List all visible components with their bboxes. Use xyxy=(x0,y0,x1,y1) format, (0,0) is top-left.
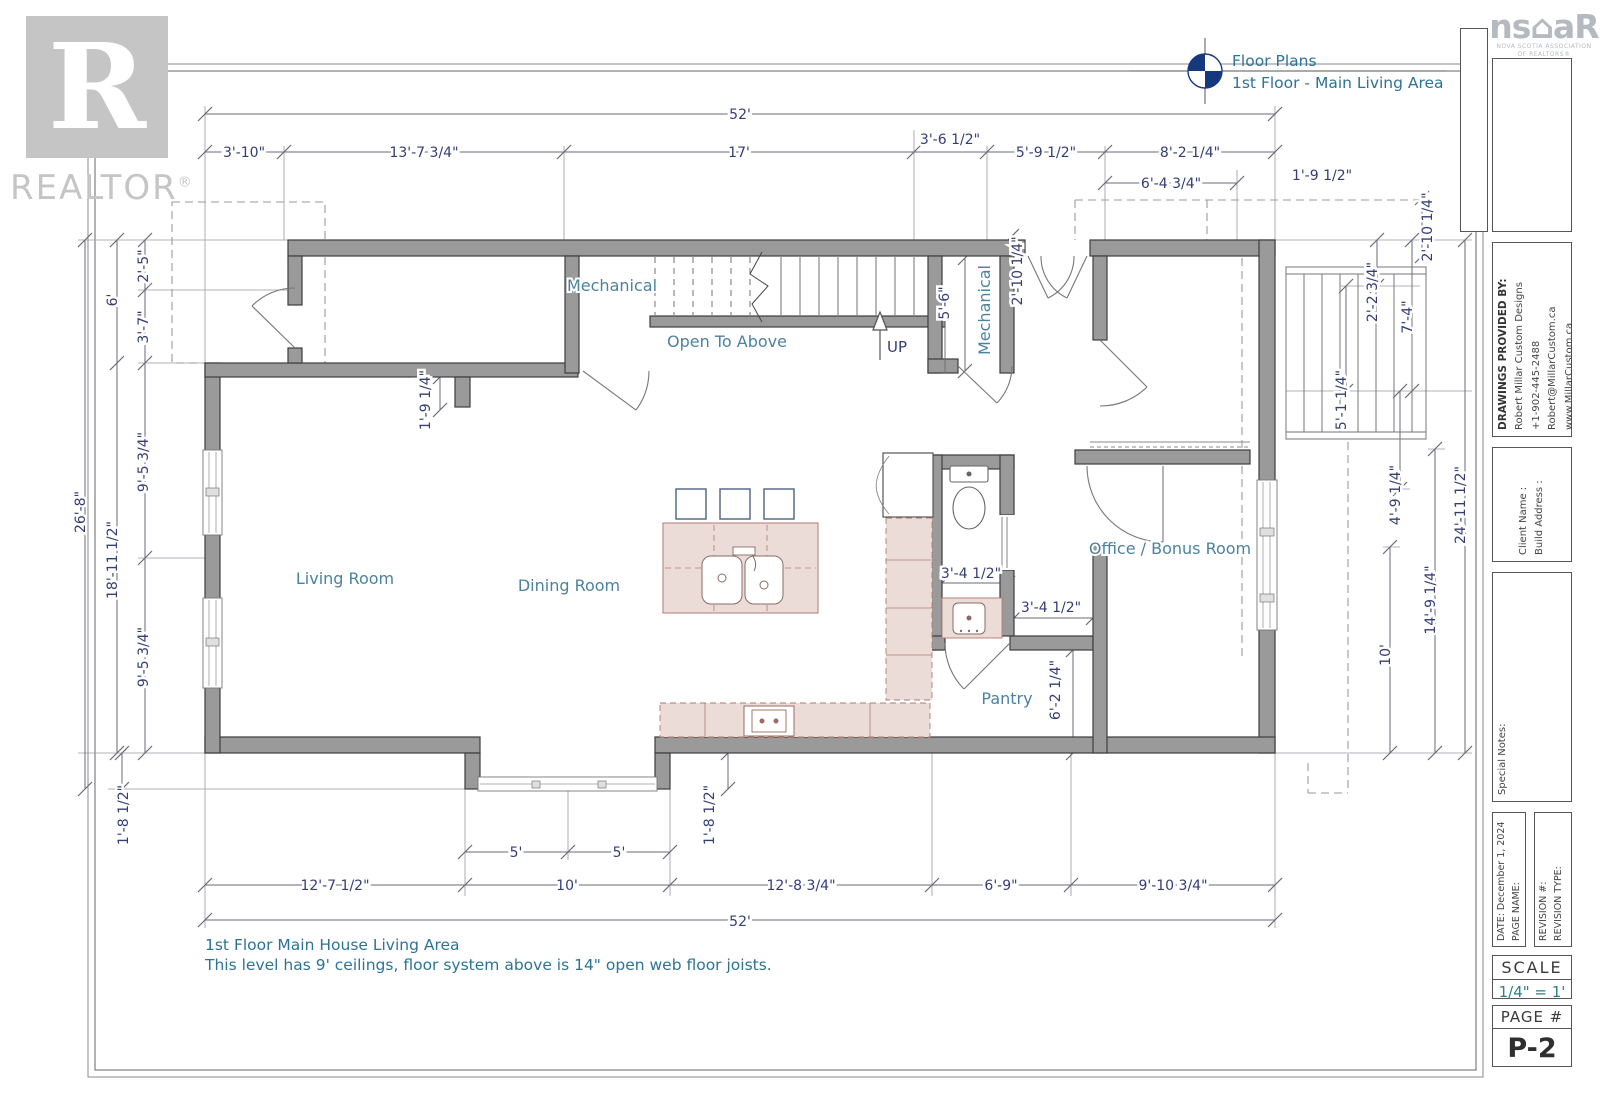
dim-top: 3'-10" xyxy=(223,145,265,161)
page-number-value: P-2 xyxy=(1493,1029,1571,1068)
kitchen-island xyxy=(663,523,818,613)
nsar-logo: ns⌂aR NOVA SCOTIA ASSOCIATIONOF REALTORS… xyxy=(1488,10,1600,59)
office-window-band xyxy=(1090,442,1250,447)
dim-bottom-bay: 1'-8 1/2" xyxy=(702,785,718,845)
dim-top-right-vert: 2'-10 1/4" xyxy=(1420,192,1436,261)
dim-top: 13'-7 3/4" xyxy=(389,145,458,161)
room-label-mechanical-2: Mechanical xyxy=(975,265,994,355)
nsar-tagline: NOVA SCOTIA ASSOCIATIONOF REALTORS® xyxy=(1488,43,1600,59)
revision-type-label: REVISION TYPE: xyxy=(1553,818,1565,941)
dim-interior: 5'-6" xyxy=(937,286,953,319)
nsar-logo-text: ns⌂aR xyxy=(1488,10,1600,43)
dim-left: 9'-5 3/4" xyxy=(136,627,152,687)
date-label: DATE: December 1, 2024 xyxy=(1496,818,1508,941)
plan-note-line1: 1st Floor Main House Living Area xyxy=(205,936,460,954)
stairs-up-label: UP xyxy=(887,338,907,356)
dim-left: 2'-5" xyxy=(136,249,152,282)
dim-top-total: 52' xyxy=(729,107,751,123)
dim-right: 5'-1 1/4" xyxy=(1334,370,1350,430)
room-label-office-bonus: Office / Bonus Room xyxy=(1089,539,1251,558)
bar-stools xyxy=(676,489,794,519)
titleblock-empty-cell-a xyxy=(1460,28,1488,232)
realtor-logo-letter: R xyxy=(48,28,146,146)
titleblock-special-notes: Special Notes: xyxy=(1492,572,1572,802)
dim-bottom: 6'-9" xyxy=(984,878,1017,894)
titleblock-date: DATE: December 1, 2024 PAGE NAME: xyxy=(1492,812,1526,947)
dim-left: 6' xyxy=(105,294,121,307)
revision-number-label: REVISION #: xyxy=(1538,818,1550,941)
dim-right: 10' xyxy=(1378,644,1394,666)
dim-interior: 3'-4 1/2" xyxy=(941,566,1001,582)
page-name-label: PAGE NAME: xyxy=(1511,818,1523,941)
fridge xyxy=(876,453,933,517)
provided-by-line: Robert@MillarCustom.ca xyxy=(1547,249,1560,430)
toilet xyxy=(950,466,988,529)
provided-by-line: +1-902-445-2488 xyxy=(1531,249,1544,430)
dim-right-total: 24'-11 1/2" xyxy=(1453,466,1469,544)
dim-left-total: 26'-8" xyxy=(73,491,89,533)
dim-bottom-total: 52' xyxy=(729,914,751,930)
stairs-exterior xyxy=(1286,267,1426,439)
realtor-logo: R xyxy=(26,16,168,158)
dim-right: 7'-4" xyxy=(1400,300,1416,333)
bathroom-sink xyxy=(942,598,1002,638)
kitchen-counter-bottom xyxy=(660,703,930,737)
drawing-sheet: Floor Plans 1st Floor - Main Living Area xyxy=(0,0,1600,1095)
dim-interior: 1'-9 1/4" xyxy=(418,370,434,430)
dim-top: 8'-2 1/4" xyxy=(1160,145,1220,161)
dim-top: 1'-9 1/2" xyxy=(1292,168,1352,184)
room-label-open-to-above: Open To Above xyxy=(667,332,787,351)
dim-left: 18'-11 1/2" xyxy=(105,521,121,599)
dim-bottom: 5' xyxy=(510,845,523,861)
dim-right: 2'-2 3/4" xyxy=(1365,262,1381,322)
dim-bottom: 10' xyxy=(556,878,578,894)
dim-interior: 3'-4 1/2" xyxy=(1021,600,1081,616)
titleblock-scale: SCALE 1/4" = 1' xyxy=(1492,955,1572,999)
titleblock-provided-by: DRAWINGS PROVIDED BY: Robert Millar Cust… xyxy=(1492,242,1572,437)
scale-label: SCALE xyxy=(1493,956,1571,980)
dim-bottom: 9'-10 3/4" xyxy=(1138,878,1207,894)
titleblock-page: PAGE # P-2 xyxy=(1492,1005,1572,1067)
drawing-subtitle: 1st Floor - Main Living Area xyxy=(1232,74,1444,92)
dim-left: 9'-5 3/4" xyxy=(136,432,152,492)
dim-bottom: 5' xyxy=(613,845,626,861)
dim-top: 5'-9 1/2" xyxy=(1016,145,1076,161)
realtor-caption: REALTOR® xyxy=(10,168,210,208)
house-icon: ⌂ xyxy=(1530,7,1553,46)
dim-top: 17' xyxy=(728,145,750,161)
dim-right: 4'-9 1/4" xyxy=(1388,465,1404,525)
dim-bottom: 12'-7 1/2" xyxy=(300,878,369,894)
page-number-label: PAGE # xyxy=(1493,1006,1571,1029)
drawing-title: Floor Plans xyxy=(1232,52,1317,70)
room-label-mechanical-1: Mechanical xyxy=(567,276,657,295)
dim-top: 3'-6 1/2" xyxy=(920,132,980,148)
provided-by-line: Robert Millar Custom Designs xyxy=(1514,249,1527,430)
provided-by-label: DRAWINGS PROVIDED BY: xyxy=(1497,249,1510,430)
room-label-living-room: Living Room xyxy=(296,569,394,588)
client-name-label: Client Name : xyxy=(1518,454,1531,555)
dim-left: 3'-7" xyxy=(136,310,152,343)
room-label-dining-room: Dining Room xyxy=(518,576,620,595)
dim-left-bay: 1'-8 1/2" xyxy=(116,785,132,845)
dim-interior: 6'-2 1/4" xyxy=(1048,660,1064,720)
titleblock-revision: REVISION #: REVISION TYPE: xyxy=(1534,812,1572,947)
titleblock-client: Client Name : Build Address : xyxy=(1492,447,1572,562)
room-label-pantry: Pantry xyxy=(981,689,1032,708)
special-notes-label: Special Notes: xyxy=(1497,579,1510,795)
dim-entry-vert: 2'-10 1/4" xyxy=(1010,236,1026,305)
plan-note-line2: This level has 9' ceilings, floor system… xyxy=(204,956,772,974)
title-compass-icon xyxy=(1130,38,1445,104)
titleblock-empty-cell-b xyxy=(1492,58,1572,232)
kitchen-counter-right xyxy=(886,518,932,700)
scale-value: 1/4" = 1' xyxy=(1493,980,1571,1004)
build-address-label: Build Address : xyxy=(1534,454,1547,555)
dim-right: 14'-9 1/4" xyxy=(1423,565,1439,634)
dim-top: 6'-4 3/4" xyxy=(1141,176,1201,192)
provided-by-line: www.MillarCustom.ca xyxy=(1564,249,1577,430)
dim-bottom: 12'-8 3/4" xyxy=(766,878,835,894)
floor-plan-drawing: Floor Plans 1st Floor - Main Living Area xyxy=(0,0,1600,1095)
